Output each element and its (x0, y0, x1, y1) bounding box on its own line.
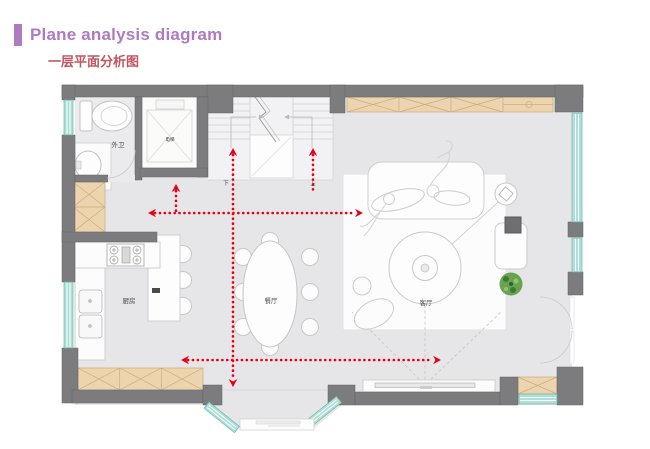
wall-corner-bottom-right (557, 367, 583, 405)
wall-right-seg2 (568, 272, 583, 295)
cabinet-bottom-right (518, 377, 557, 394)
elevator (142, 97, 197, 168)
floor-lamp (495, 183, 517, 205)
floor-plan: 外卫 电梯 厨房 餐厅 客厅 下 上 (0, 0, 650, 449)
wall-right-seg1 (568, 222, 583, 237)
cabinet-bottom-left (78, 368, 203, 390)
stove (107, 244, 144, 266)
kitchen-counter-left (75, 268, 105, 360)
elevator-door (156, 100, 184, 109)
potted-plant (500, 273, 523, 296)
label-elevator: 电梯 (166, 136, 175, 143)
window-right-lower (572, 238, 582, 272)
wall-top (62, 85, 583, 97)
window-bottom-right (519, 394, 557, 404)
tv-bench (363, 380, 495, 392)
wall-left-1 (62, 85, 75, 100)
tv-stand-nub (420, 386, 432, 389)
label-dining: 餐厅 (265, 296, 279, 305)
window-left-upper (64, 100, 73, 135)
toilet (80, 101, 132, 131)
side-table (505, 217, 521, 233)
wall-bottom-left (72, 390, 203, 403)
armchair (495, 217, 527, 269)
wall-left-2 (62, 135, 75, 282)
entry-door-bay (240, 419, 314, 430)
window-left-kitchen (64, 282, 73, 348)
wall-kitchen-top (62, 232, 157, 242)
wall-column-a (207, 85, 233, 113)
label-kitchen: 厨房 (123, 296, 136, 305)
wall-bottom-mid (355, 392, 500, 405)
wall-bay-left (203, 385, 222, 405)
wall-block-br1 (500, 377, 518, 405)
wall-column-b (330, 85, 345, 113)
wall-bathroom-bottom (75, 175, 108, 182)
label-bathroom: 外卫 (112, 140, 126, 149)
label-stair-up: 上 (310, 180, 316, 188)
cabinet-top-wall (347, 97, 553, 112)
wall-elevator-right (197, 97, 208, 177)
cabinet-left-wall (73, 182, 105, 232)
label-living: 客厅 (420, 298, 434, 307)
coffee-table (389, 232, 461, 304)
dining-table (243, 241, 297, 347)
island-label-mark (152, 288, 160, 293)
wall-bath-elevator (135, 97, 142, 180)
page: Plane analysis diagram 一层平面分析图 (0, 0, 650, 449)
wall-below-elevator (140, 168, 207, 177)
wall-corner-top-right (555, 85, 583, 112)
label-stair-down: 下 (223, 180, 229, 187)
window-right-upper (572, 113, 582, 222)
